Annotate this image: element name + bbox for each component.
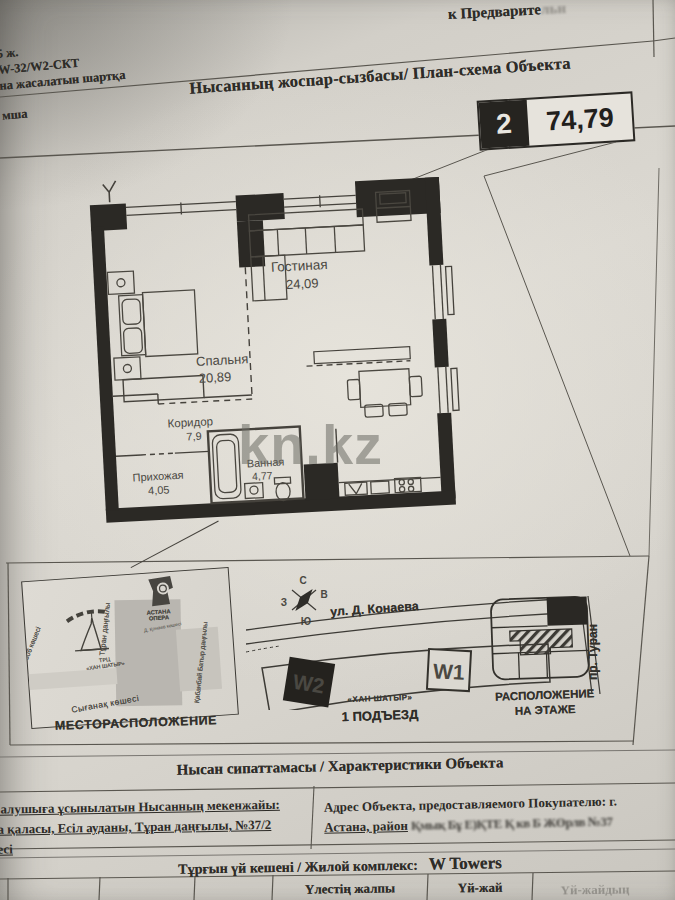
address-kz-cell: п алушыға ұсынылатын Нысанның мекенжайы:… [0,794,312,860]
compass-icon: С В З Ю [280,574,328,626]
plan-walls [89,177,456,523]
contract-reference-faded: льн [541,0,567,17]
room-living-name: Гостиная [271,257,328,275]
corner-notes: 5 ж. W-32/W2-СКТ на жасалатын шартқа мша [0,35,129,124]
khan-shatyr-icon [58,604,121,660]
apartment-badge: 2 74,79 [477,91,636,150]
address-ru-cell: Адрес Объекта, предоставляемого Покупате… [324,790,675,837]
complex-label: Тұрғын үй кешені / Жилой комплекс: [178,858,418,877]
entrance-caption: 1 ПОДЪЕЗД [300,705,460,726]
compass-w: З [281,597,287,608]
address-ru-line2-lead: Астана, район [324,818,408,835]
floor-position-diagram [486,588,597,688]
plan-room-labels: Гостиная 24,09 Спальня 20,89 Коридор 7,9… [122,257,340,497]
contract-reference-text: к Предварите [448,1,542,22]
plan-windows [103,164,467,568]
map-road-shade [29,668,118,690]
address-ru-corrections: Қмық Бұ Е)ҚТЕ Қ кв Б ЖӨрлв №37 [411,814,613,833]
tower-w1-label: W1 [433,659,466,684]
scanned-document-page: к Предварительн 5 ж. W-32/W2-СКТ на жаса… [0,0,675,900]
characteristics-title: Нысан сипаттамасы / Характеристики Объек… [90,752,590,780]
watermark: kn.kz [238,412,383,477]
room-living-area: 24,09 [286,275,319,292]
street-syganak-map: Сығанақ көшесі [70,693,139,715]
plan-furniture [104,190,427,509]
compass-s: Ю [301,616,311,626]
table-header-premise2: Үй-жайдың [540,881,650,899]
compass-e: В [320,589,327,600]
table-header-premise: Үй-жай [432,879,528,896]
room-hallway-area: 4,05 [148,483,170,496]
complex-name: W Towers [429,853,502,873]
compass-n: С [299,575,306,586]
plan-partitions [106,258,441,509]
opera-icon [140,573,182,610]
contract-reference: к Предварительн [448,0,567,23]
street-konaev-small: Д. Қонаев көшесі [143,621,181,633]
khan-shatyr-note: «ХАН ШАТЫР» [310,692,450,706]
room-corridor-name: Коридор [167,415,213,429]
opera-label: АСТАНА ОПЕРА [132,607,185,623]
tower-w2-label: W2 [291,670,326,698]
room-bathroom-area: 4,77 [252,469,273,482]
floor-plan: Гостиная 24,09 Спальня 20,89 Коридор 7,9… [82,160,479,581]
room-corridor-area: 7,9 [186,430,202,443]
room-hallway-name: Прихожая [132,469,184,484]
street-konaev-label: ул. Д. Конаева [330,599,419,619]
street-left-306: 306 көшесі [22,626,42,661]
location-map-box: ТРЦ «ХАН ШАТЫР» АСТАНА ОПЕРА Д. Қонаев к… [21,567,239,729]
apartment-number-box: 2 [479,100,530,149]
table-header-share: Үлестің жалпы [280,880,420,898]
room-bedroom-name: Спальня [196,351,249,369]
street-kabanbay-map: Қабанбай Батыр даңғылы [193,622,209,704]
floor-position-caption: РАСПОЛОЖЕНИЕ НА ЭТАЖЕ [470,685,621,720]
room-bathroom-name: Ванная [246,455,284,469]
room-bedroom-area: 20,89 [198,369,231,386]
apartment-area: 74,79 [527,93,634,145]
corner-note-line: мша [1,97,128,124]
